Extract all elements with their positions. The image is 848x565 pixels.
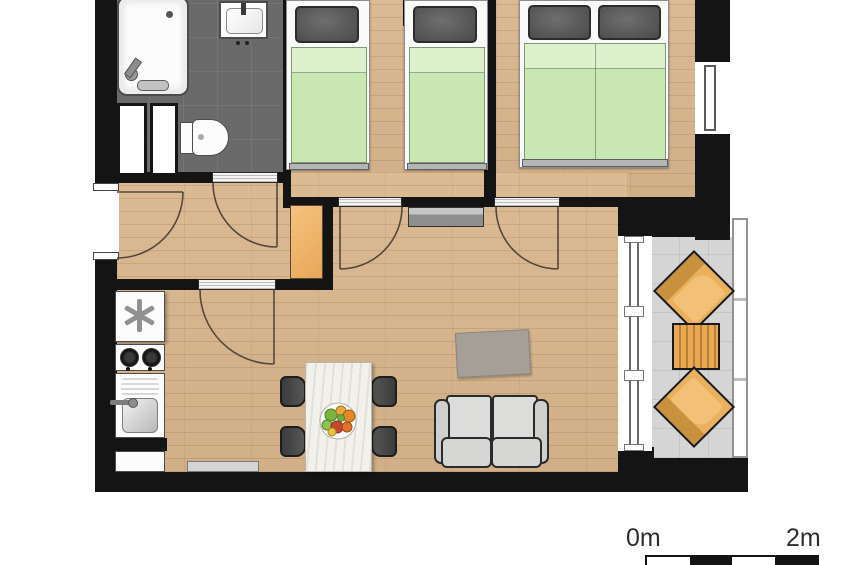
- duct-shaft: [150, 103, 178, 176]
- scale-segment: [775, 557, 818, 565]
- balcony-bottom-corner-wall: [618, 447, 654, 492]
- sofa-backrest: [491, 437, 542, 468]
- balcony-bottom-wall: [650, 458, 748, 492]
- washbasin-dot: [245, 41, 249, 45]
- bedroom1-door-sill: [338, 197, 402, 207]
- railing-joint: [734, 378, 746, 381]
- rug: [455, 329, 531, 378]
- floor-plan: 0m 2m: [0, 0, 848, 565]
- kitchen-wall-piece: [113, 438, 167, 451]
- sink-faucet-head: [128, 398, 138, 408]
- bed-footboard: [407, 163, 487, 170]
- dining-chair: [280, 426, 306, 457]
- washbasin: [219, 1, 268, 39]
- toilet-flush-button: [198, 134, 204, 140]
- entry-jamb-top: [93, 183, 119, 191]
- bathroom-door-sill: [212, 172, 278, 183]
- glass-door-mullion: [624, 306, 644, 317]
- entry-opening: [93, 183, 119, 260]
- wardrobe-cabinet: [290, 205, 323, 279]
- scale-start-label: 0m: [626, 524, 661, 553]
- washbasin-dot: [236, 41, 240, 45]
- radiator: [187, 461, 259, 472]
- kitchen-cabinet: [115, 451, 165, 472]
- blanket-fold: [410, 48, 484, 73]
- blanket-seam: [595, 44, 596, 162]
- bed-footboard: [289, 163, 369, 170]
- kitchen-sink-counter: [115, 373, 165, 438]
- bed-pillow: [295, 6, 359, 43]
- appliance-asterisk-icon: [123, 299, 156, 332]
- stove-knob: [148, 367, 152, 371]
- bathtub: [117, 0, 189, 96]
- railing-joint: [734, 298, 746, 301]
- double-bed: [519, 0, 669, 168]
- blanket-fold: [292, 48, 366, 73]
- hall-right-wall: [323, 197, 333, 289]
- sink-faucet: [110, 400, 130, 405]
- scale-bar: [645, 555, 819, 565]
- sofa-backrest: [441, 437, 492, 468]
- single-bed: [404, 0, 488, 170]
- bed-blanket: [524, 43, 666, 161]
- stove-knob: [126, 367, 130, 371]
- bedroom2-window-frame: [704, 65, 716, 131]
- dining-chair: [280, 376, 306, 407]
- sideboard: [408, 207, 484, 227]
- single-bed: [286, 0, 370, 170]
- scale-segment: [732, 557, 775, 565]
- scale-end-label: 2m: [786, 524, 821, 553]
- toilet-bowl: [192, 119, 229, 156]
- hall-living-door-sill: [198, 279, 276, 290]
- living-room-floor: [117, 172, 627, 472]
- glass-door-mullion: [624, 444, 644, 451]
- bed-pillow: [528, 5, 591, 40]
- bed-blanket: [409, 47, 485, 163]
- balcony-glass-door: [618, 236, 652, 451]
- dining-chair: [371, 426, 397, 457]
- bottom-exterior-wall: [95, 472, 652, 492]
- bed-blanket: [291, 47, 367, 163]
- balcony-slat-table: [672, 323, 720, 370]
- bed-pillow: [598, 5, 661, 40]
- bed-pillow: [413, 6, 477, 43]
- bed-footboard: [522, 159, 668, 167]
- glass-door-frame-line: [637, 236, 639, 451]
- bathtub-drain: [166, 11, 173, 18]
- dining-chair: [371, 376, 397, 407]
- drainboard: [121, 378, 159, 395]
- glass-door-mullion: [624, 370, 644, 381]
- bathtub-grab-bar: [137, 80, 169, 91]
- dining-table: [305, 362, 372, 472]
- duct-shaft: [117, 103, 147, 176]
- entry-jamb-bottom: [93, 252, 119, 260]
- burner: [142, 348, 161, 367]
- glass-door-frame-line: [629, 236, 631, 451]
- sofa: [434, 392, 549, 470]
- stove-two-burners: [115, 344, 165, 371]
- balcony-top-wall: [618, 203, 730, 237]
- washbasin-tap: [241, 3, 246, 15]
- scale-segment: [647, 557, 690, 565]
- kitchen-appliance: [115, 291, 165, 342]
- balcony-railing: [732, 218, 748, 458]
- glass-door-mullion: [624, 236, 644, 243]
- burner: [120, 348, 139, 367]
- bedroom2-door-sill: [494, 197, 560, 207]
- scale-segment: [690, 557, 733, 565]
